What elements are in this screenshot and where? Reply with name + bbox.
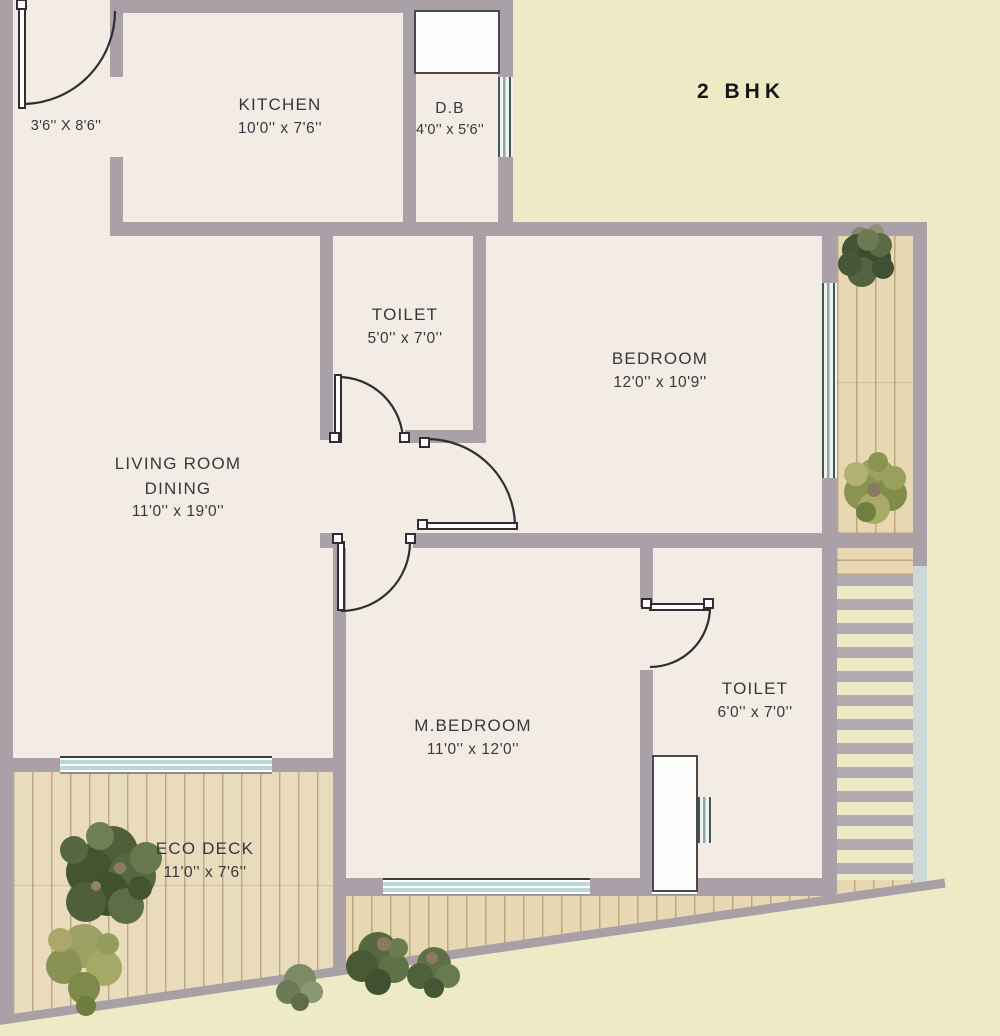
bottom-deck-surface: [333, 896, 940, 1036]
living-name-line2: DINING: [78, 477, 278, 502]
eco-deck-surface: [13, 772, 333, 1036]
room-label-entrance: 3'6'' X 8'6'': [6, 116, 126, 136]
plan-title: 2 BHK: [697, 80, 785, 104]
wall-toilet1-bottom: [405, 430, 486, 443]
wall-living-bottom-b: [272, 758, 333, 772]
pergola-stripes: [837, 575, 913, 878]
floor-plan: 2 BHK 3'6'' X 8'6'' KITCHEN 10'0'' x 7'6…: [0, 0, 1000, 1036]
toilet2-shaft-box: [652, 755, 698, 892]
deck-right-edge-lower: [913, 566, 927, 888]
toilet1-name: TOILET: [330, 303, 480, 328]
wall-living-bottom-a: [13, 758, 60, 772]
toilet2-name: TOILET: [680, 677, 830, 702]
room-label-toilet1: TOILET 5'0'' x 7'0'': [330, 303, 480, 350]
ecodeck-dims: 11'0'' x 7'6'': [120, 862, 290, 884]
wall-mbedroom-toilet2-upper: [640, 548, 653, 607]
wall-kitchen-row-bottom: [110, 222, 837, 236]
kitchen-name: KITCHEN: [180, 93, 380, 118]
toilet2-dims: 6'0'' x 7'0'': [680, 702, 830, 724]
window-living-ecodeck: [60, 756, 272, 774]
room-label-bedroom: BEDROOM 12'0'' x 10'9'': [560, 347, 760, 394]
mbedroom-name: M.BEDROOM: [373, 714, 573, 739]
room-label-toilet2: TOILET 6'0'' x 7'0'': [680, 677, 830, 724]
right-deck-surface: [837, 236, 913, 533]
wall-left-outer: [0, 0, 13, 1020]
room-label-mbedroom: M.BEDROOM 11'0'' x 12'0'': [373, 714, 573, 761]
window-bedroom: [822, 283, 837, 478]
ecodeck-name: ECO DECK: [120, 837, 290, 862]
room-label-ecodeck: ECO DECK 11'0'' x 7'6'': [120, 837, 290, 884]
wall-deck-right: [913, 236, 927, 566]
wall-hall-stub: [320, 533, 341, 548]
db-dims: 4'0'' x 5'6'': [395, 120, 505, 140]
kitchen-duct-box: [414, 10, 500, 74]
mbedroom-dims: 11'0'' x 12'0'': [373, 739, 573, 761]
room-label-db: D.B 4'0'' x 5'6'': [395, 98, 505, 140]
room-label-living: LIVING ROOM DINING 11'0'' x 19'0'': [78, 452, 278, 524]
living-dims: 11'0'' x 19'0'': [78, 501, 278, 523]
kitchen-dims: 10'0'' x 7'6'': [180, 118, 380, 140]
right-deck-landing: [837, 548, 913, 575]
toilet1-dims: 5'0'' x 7'0'': [330, 328, 480, 350]
wall-mbedroom-left: [333, 548, 346, 975]
db-name: D.B: [395, 98, 505, 120]
window-toilet2-side: [698, 797, 712, 843]
bedroom-name: BEDROOM: [560, 347, 760, 372]
window-mbedroom: [383, 878, 590, 895]
right-deck-lower-strip: [835, 880, 913, 896]
bedroom-dims: 12'0'' x 10'9'': [560, 372, 760, 394]
wall-entry-kitchen-lower: [110, 157, 123, 223]
living-name-line1: LIVING ROOM: [78, 452, 278, 477]
room-label-kitchen: KITCHEN 10'0'' x 7'6'': [180, 93, 380, 140]
entrance-dims: 3'6'' X 8'6'': [6, 116, 126, 136]
wall-deck-top: [835, 222, 927, 236]
wall-entry-kitchen-upper: [110, 13, 123, 77]
wall-bedroom-bottom: [413, 533, 915, 548]
